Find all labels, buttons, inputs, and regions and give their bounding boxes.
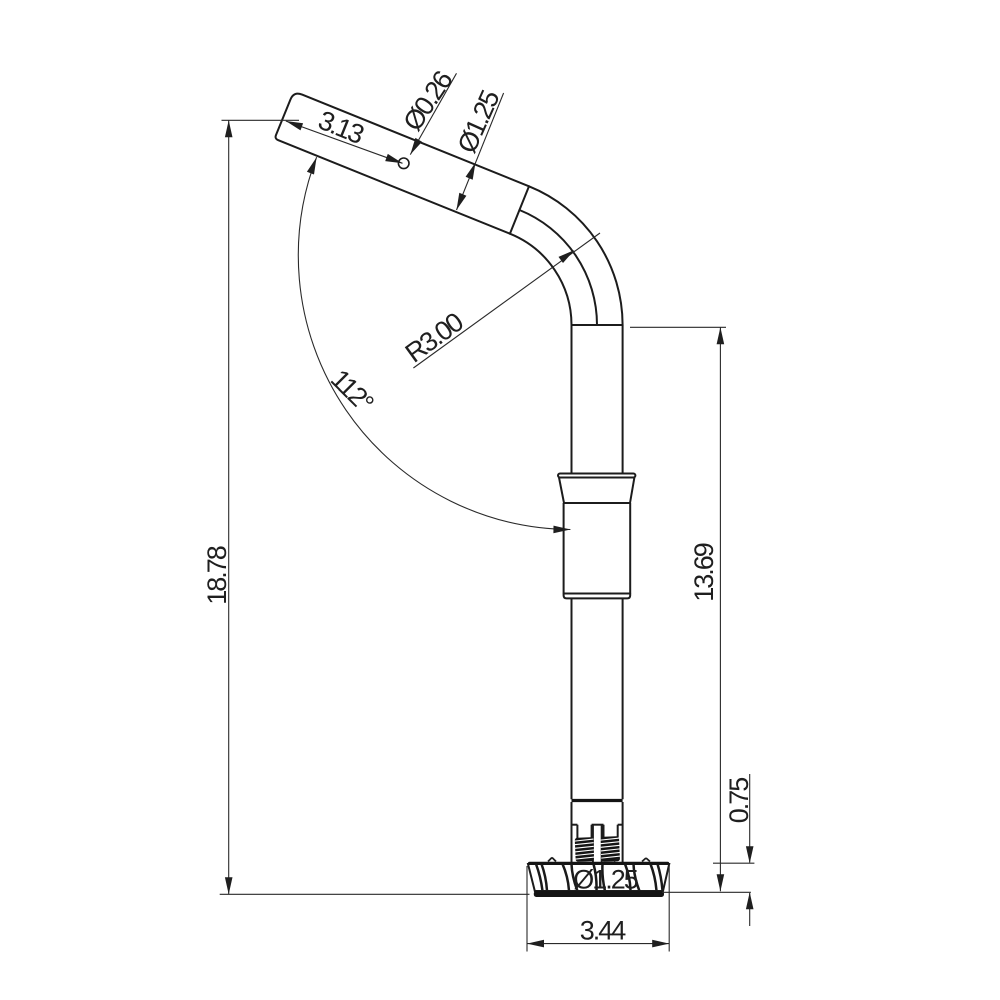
- svg-text:13.69: 13.69: [689, 543, 719, 602]
- svg-text:0.75: 0.75: [724, 778, 754, 824]
- svg-text:Ø1.25: Ø1.25: [573, 865, 638, 895]
- svg-text:3.44: 3.44: [580, 916, 627, 946]
- svg-text:18.78: 18.78: [202, 546, 232, 605]
